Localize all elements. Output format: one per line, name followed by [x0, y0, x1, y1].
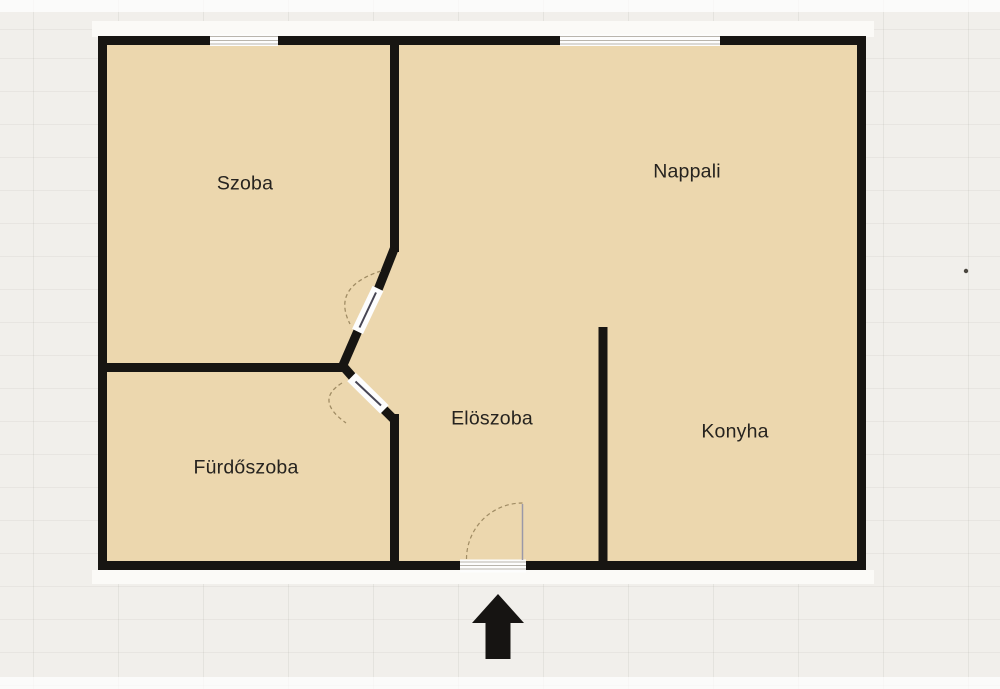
room-label-szoba: Szoba	[217, 173, 273, 196]
wall-furdoszoba-east	[390, 414, 399, 566]
room-label-eloszoba: Elöszoba	[451, 408, 533, 431]
wall-outer-left	[98, 36, 107, 570]
wall-konyha-west	[599, 327, 608, 566]
entrance-arrow-icon	[472, 594, 524, 659]
stray-dot	[964, 269, 968, 273]
window-nappali	[560, 35, 720, 47]
floor-plan-canvas: Szoba Nappali Elöszoba Fürdőszoba Konyha	[0, 0, 1000, 689]
window-szoba	[210, 35, 278, 47]
room-label-furdoszoba: Fürdőszoba	[194, 457, 299, 480]
wall-furdoszoba-north	[98, 363, 346, 372]
room-label-nappali: Nappali	[653, 161, 721, 184]
wall-szoba-east	[390, 45, 399, 252]
floor-plan-drawing	[0, 0, 1000, 689]
room-label-konyha: Konyha	[701, 421, 768, 444]
wall-outer-right	[857, 36, 866, 570]
floor-area	[98, 36, 866, 570]
